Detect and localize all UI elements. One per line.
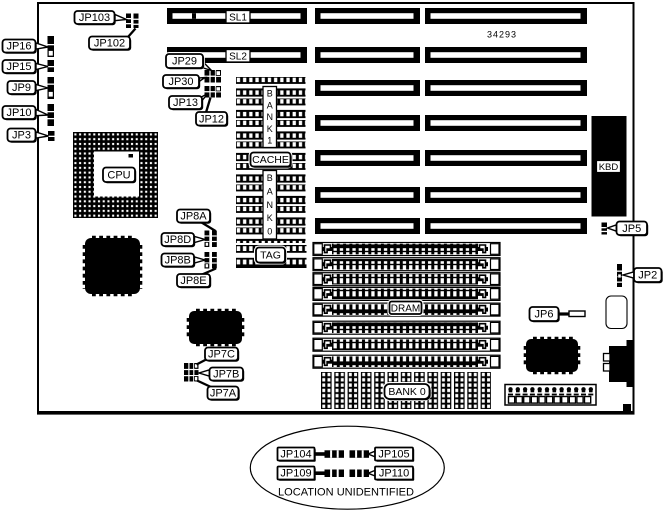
svg-text:CPU: CPU: [107, 169, 130, 181]
svg-text:JP103: JP103: [79, 12, 110, 24]
svg-text:N: N: [267, 200, 274, 210]
svg-text:DRAM: DRAM: [391, 303, 420, 314]
svg-text:JP104: JP104: [280, 449, 311, 461]
svg-text:JP7A: JP7A: [210, 388, 237, 400]
svg-text:JP29: JP29: [172, 56, 197, 68]
svg-text:JP10: JP10: [6, 107, 31, 119]
svg-text:JP3: JP3: [12, 130, 31, 142]
svg-text:LOCATION UNIDENTIFIED: LOCATION UNIDENTIFIED: [278, 487, 414, 499]
svg-text:JP2: JP2: [638, 270, 657, 282]
svg-text:TAG: TAG: [260, 250, 281, 262]
svg-text:B: B: [267, 89, 273, 99]
svg-text:JP9: JP9: [12, 82, 31, 94]
svg-text:BANK 0: BANK 0: [388, 386, 426, 398]
svg-text:0: 0: [267, 227, 272, 237]
svg-text:JP15: JP15: [6, 61, 31, 73]
svg-text:JP5: JP5: [622, 223, 641, 235]
svg-text:JP8E: JP8E: [180, 275, 206, 287]
svg-text:JP12: JP12: [199, 113, 224, 125]
svg-text:A: A: [267, 186, 273, 196]
svg-text:SL2: SL2: [229, 51, 247, 62]
svg-text:JP8D: JP8D: [164, 234, 191, 246]
svg-text:JP16: JP16: [6, 41, 31, 53]
svg-text:JP102: JP102: [94, 38, 125, 50]
svg-text:CACHE: CACHE: [252, 154, 289, 166]
svg-text:B: B: [267, 173, 273, 183]
svg-text:N: N: [267, 112, 274, 122]
svg-text:K: K: [267, 124, 273, 134]
svg-text:1: 1: [267, 136, 272, 146]
svg-text:KBD: KBD: [599, 162, 619, 173]
svg-text:K: K: [267, 213, 273, 223]
svg-text:JP7C: JP7C: [208, 349, 235, 361]
svg-text:JP6: JP6: [535, 309, 554, 321]
svg-text:JP109: JP109: [280, 468, 311, 480]
svg-text:34293: 34293: [487, 30, 517, 40]
svg-text:JP30: JP30: [168, 76, 193, 88]
svg-text:JP8B: JP8B: [165, 255, 191, 267]
svg-text:JP13: JP13: [173, 97, 198, 109]
svg-text:JP7B: JP7B: [213, 369, 239, 381]
svg-text:JP105: JP105: [378, 449, 409, 461]
svg-text:SL1: SL1: [229, 12, 247, 23]
svg-text:JP110: JP110: [379, 468, 409, 480]
svg-text:JP8A: JP8A: [180, 211, 207, 223]
svg-text:A: A: [267, 100, 273, 110]
